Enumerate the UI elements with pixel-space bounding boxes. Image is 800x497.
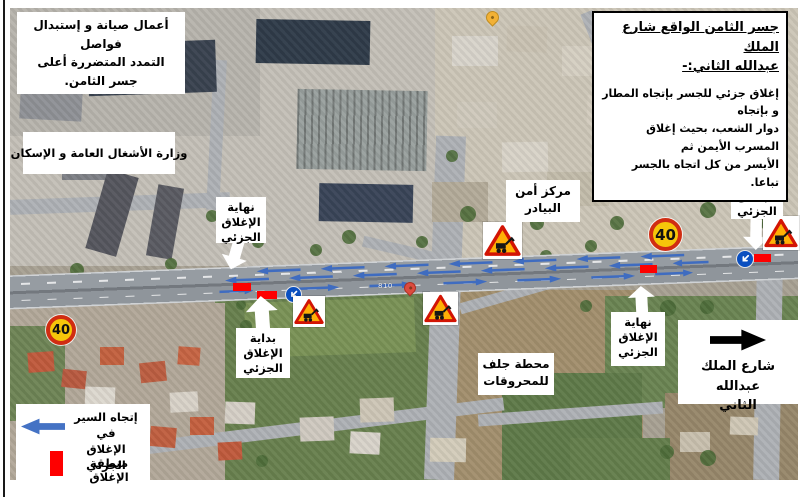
label-line: الإغلاق xyxy=(611,330,665,345)
label-line: الجزئي xyxy=(236,361,290,376)
map-building xyxy=(300,416,335,441)
map-tree xyxy=(660,445,674,459)
note-line: أعمال صيانة و إستبدال فواصل xyxy=(22,16,180,53)
map-building xyxy=(680,432,710,452)
label-line: البيادر xyxy=(508,200,578,217)
roadworks-warning-sign-icon xyxy=(423,292,458,325)
legend: إتجاه السير في الإغلاق الجزئي منطقة الإغ… xyxy=(16,404,150,482)
map-building xyxy=(190,417,214,435)
speed-limit-value: 40 xyxy=(655,226,676,244)
traffic-plan-slide: 40 40 810 نهاية الإغلاق الجزئي بداية الإ… xyxy=(0,0,800,497)
map-tree xyxy=(256,455,268,467)
street-name-line: الثاني xyxy=(678,396,798,416)
map-building xyxy=(452,36,498,66)
label-line: الجزئي xyxy=(216,230,266,245)
map-tree xyxy=(446,150,458,162)
roadworks-warning-sign-icon xyxy=(483,222,522,259)
closure-zone-marker xyxy=(640,265,657,273)
notice-title-line: جسر الثامن الواقع شارع الملك xyxy=(601,18,779,57)
traffic-arrow-left-icon xyxy=(545,263,589,272)
closure-end-label: نهاية الإغلاق الجزئي xyxy=(216,197,266,243)
window-edge xyxy=(3,0,5,497)
label-line: نهاية xyxy=(216,200,266,215)
notice-title-line: عبدالله الثاني:- xyxy=(601,57,779,77)
speed-limit-value: 40 xyxy=(52,323,70,338)
closure-notice: جسر الثامن الواقع شارع الملك عبدالله الث… xyxy=(592,11,788,202)
spacer xyxy=(601,77,779,85)
label-line: إتجاه السير في xyxy=(66,409,146,441)
label-line: محطة جلف xyxy=(480,356,552,373)
map-building xyxy=(349,431,380,455)
closure-zone-marker xyxy=(754,254,771,262)
closure-end-label: نهاية الإغلاق الجزئي xyxy=(611,312,665,366)
label-line: نهاية xyxy=(611,315,665,330)
label-line: الجزئي xyxy=(731,204,783,219)
right-arrow-icon xyxy=(710,328,766,352)
label-line: الإغلاق xyxy=(236,346,290,361)
speed-limit-sign: 40 xyxy=(649,218,682,251)
note-line: التمدد المتضررة أعلى جسر الثامن. xyxy=(22,53,180,90)
map-building xyxy=(360,397,395,422)
map-tree xyxy=(700,300,714,314)
label-line: للمحروقات xyxy=(480,373,552,390)
map-tree xyxy=(585,240,597,252)
map-tree xyxy=(700,202,716,218)
traffic-arrow-left-icon xyxy=(673,259,709,267)
traffic-arrow-right-icon xyxy=(591,272,635,281)
label-line: الجزئي xyxy=(611,345,665,360)
map-tree xyxy=(342,230,356,244)
traffic-arrow-right-icon xyxy=(517,275,561,284)
map-building xyxy=(61,369,87,389)
traffic-arrow-right-icon xyxy=(295,284,339,293)
roadworks-warning-sign-icon xyxy=(763,216,799,250)
fuel-station-label: محطة جلف للمحروقات xyxy=(478,353,554,395)
closure-start-label: بداية الإغلاق الجزئي xyxy=(236,328,290,378)
closure-zone-marker xyxy=(233,283,251,291)
map-building xyxy=(296,89,427,171)
map-tree xyxy=(236,300,246,310)
notice-body-line: الأيسر من كل اتجاه بالجسر تباعا. xyxy=(601,156,779,192)
traffic-arrow-left-icon xyxy=(481,266,525,275)
map-building xyxy=(319,183,414,223)
street-name-sign: شارع الملك عبدالله الثاني xyxy=(678,320,798,404)
roadworks-warning-sign-icon xyxy=(293,296,325,327)
map-building xyxy=(139,361,167,384)
traffic-arrow-left-icon xyxy=(417,268,461,277)
map-zone xyxy=(570,438,670,480)
map-building xyxy=(502,142,549,173)
map-building xyxy=(149,426,177,448)
map-tree xyxy=(580,300,592,312)
ministry-label: وزارة الأشغال العامة و الإسكان xyxy=(23,132,175,174)
map-building xyxy=(27,351,54,373)
traffic-arrow-left-icon xyxy=(289,273,333,282)
map-building xyxy=(430,438,466,463)
road-number-label: 810 xyxy=(378,282,393,290)
label-line: مركز أمن xyxy=(508,183,578,200)
maintenance-note: أعمال صيانة و إستبدال فواصل التمدد المتض… xyxy=(17,12,185,94)
label-line: الإغلاق xyxy=(216,215,266,230)
map-tree xyxy=(700,450,716,466)
traffic-arrow-left-icon xyxy=(353,271,397,280)
notice-body-line: إغلاق جزئي للجسر بإتجاه المطار و بإتجاه xyxy=(601,85,779,121)
left-arrow-icon xyxy=(21,418,65,435)
map-building xyxy=(225,401,256,424)
map-building xyxy=(507,25,548,52)
map-tree xyxy=(460,206,476,222)
traffic-arrow-right-icon xyxy=(443,278,487,287)
legend-closure-label: منطقة الإغلاق xyxy=(72,456,146,484)
label-line: بداية xyxy=(236,331,290,346)
map-building xyxy=(730,417,759,436)
keep-left-sign-icon xyxy=(736,250,754,268)
map-tree xyxy=(310,244,322,256)
map-building xyxy=(457,102,497,128)
map-building xyxy=(169,391,198,412)
notice-body-line: دوار الشعب، بحيث إغلاق المسرب الأيمن ثم xyxy=(601,120,779,156)
map-tree xyxy=(610,216,624,230)
street-name-line: شارع الملك عبدالله xyxy=(678,357,798,396)
map-building xyxy=(218,441,243,460)
speed-limit-sign: 40 xyxy=(46,315,76,345)
security-center-label: مركز أمن البيادر xyxy=(506,180,580,222)
map-building xyxy=(256,19,371,65)
map-building xyxy=(177,346,200,365)
closure-zone-swatch xyxy=(50,451,63,476)
map-building xyxy=(100,347,124,365)
map-tree xyxy=(416,236,428,248)
